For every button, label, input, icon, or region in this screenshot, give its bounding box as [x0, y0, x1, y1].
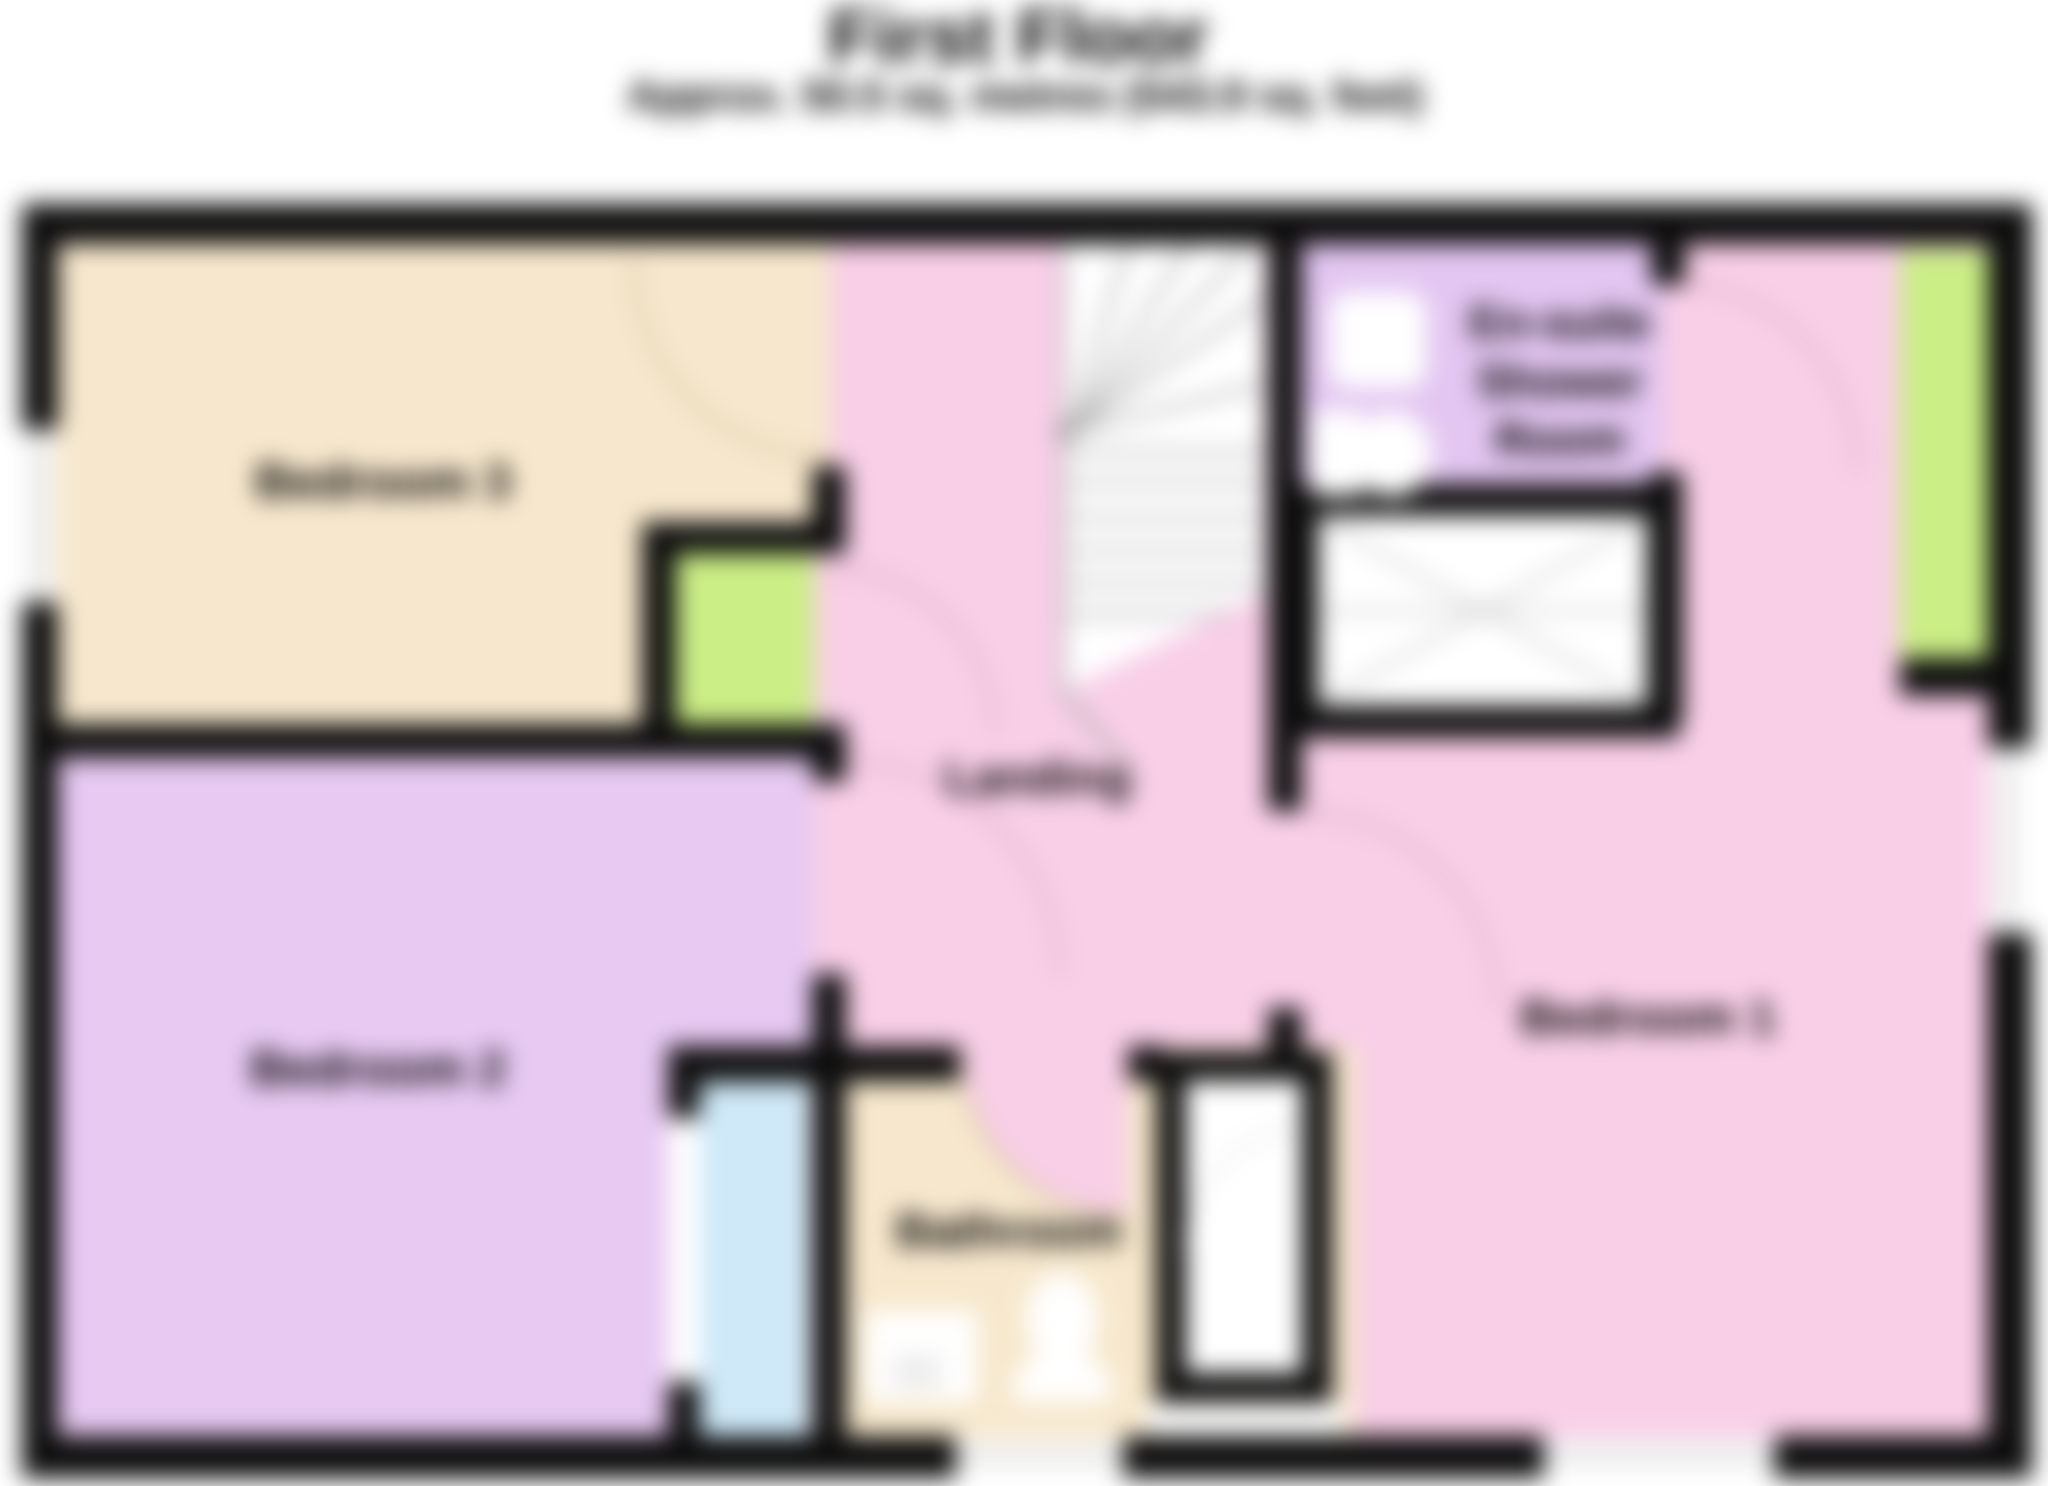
svg-text:Landing: Landing: [945, 752, 1132, 805]
svg-text:Bathroom: Bathroom: [896, 1205, 1123, 1258]
svg-text:En-suite: En-suite: [1469, 296, 1650, 348]
svg-text:Shower: Shower: [1477, 355, 1643, 407]
svg-text:Room: Room: [1495, 413, 1625, 465]
svg-text:Bedroom 2: Bedroom 2: [250, 1042, 506, 1096]
svg-text:First Floor: First Floor: [828, 0, 1209, 80]
svg-text:Bedroom 1: Bedroom 1: [1520, 991, 1776, 1045]
svg-text:Bedroom 3: Bedroom 3: [255, 455, 511, 509]
svg-text:Approx. 50.5 sq. metres (543.9: Approx. 50.5 sq. metres (543.9 sq. feet): [627, 72, 1423, 120]
